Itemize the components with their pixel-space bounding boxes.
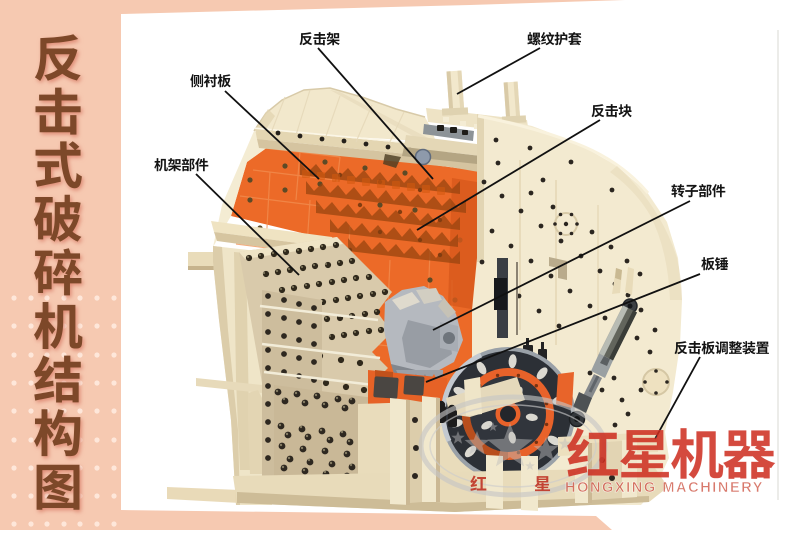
svg-text:HONGXING MACHINERY: HONGXING MACHINERY <box>565 480 764 496</box>
